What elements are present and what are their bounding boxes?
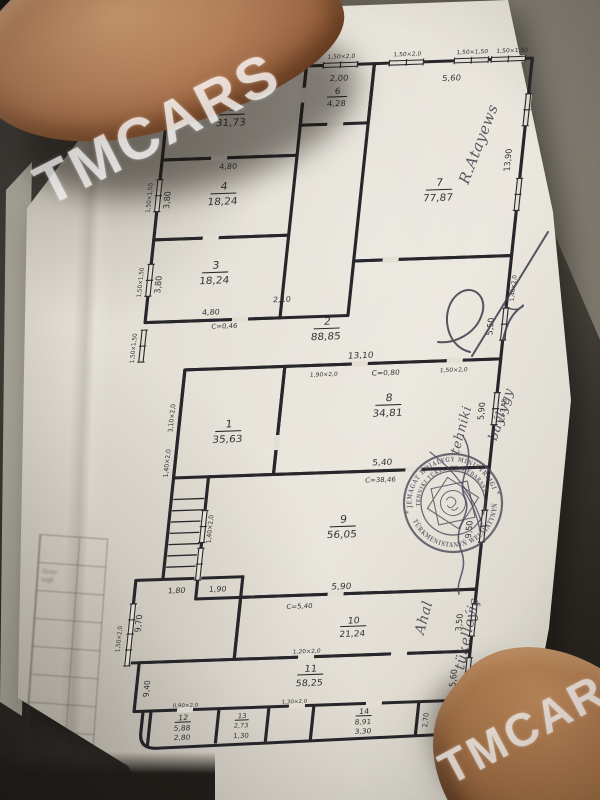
dim-annex-height: 9,70 <box>132 614 144 632</box>
table-shadow-bottom <box>0 752 215 800</box>
room-11-label: 1158,25 <box>295 664 325 690</box>
room-13-label: 132,73 <box>233 712 249 730</box>
dim-c046: C=0,46 <box>211 322 238 331</box>
window-label: 3,10×2,0 <box>167 404 177 433</box>
svg-text:9: 9 <box>339 513 348 526</box>
svg-text:10: 10 <box>347 615 360 626</box>
dim-room3-height: 3,80 <box>152 276 164 294</box>
window-label: 1,40×2,0 <box>163 449 173 478</box>
svg-text:35,63: 35,63 <box>212 434 243 446</box>
svg-text:58,25: 58,25 <box>295 678 323 690</box>
svg-text:5,88: 5,88 <box>173 723 191 732</box>
window-label: 1,50×1,50 <box>496 48 529 55</box>
room-14-label: 148,91 <box>354 707 373 727</box>
dim-c540: C=5,40 <box>286 602 313 611</box>
seal-star <box>422 472 484 534</box>
dim-room12-width: 2,80 <box>173 733 191 742</box>
svg-text:21,24: 21,24 <box>339 629 366 640</box>
door-label: 1,20×2,0 <box>292 649 321 656</box>
svg-text:13: 13 <box>237 712 247 720</box>
room-10-label: 1021,24 <box>339 615 368 640</box>
dim-room2-height: 5,50 <box>484 317 496 335</box>
door-label: 0,90×2,0 <box>172 703 199 710</box>
svg-text:3: 3 <box>212 259 220 272</box>
dim-c080: C=0,80 <box>371 368 400 378</box>
room-9-label: 956,05 <box>326 512 359 541</box>
svg-text:11: 11 <box>304 664 318 675</box>
dim-room8-height: 5,90 <box>475 402 487 420</box>
svg-text:88,85: 88,85 <box>310 331 341 343</box>
svg-text:2,73: 2,73 <box>233 722 248 729</box>
dim-room14-width: 3,30 <box>354 726 372 735</box>
room-8-label: 834,81 <box>372 391 405 420</box>
svg-text:34,81: 34,81 <box>372 408 403 420</box>
dim-room2-width: 13,10 <box>347 351 374 362</box>
svg-text:8,91: 8,91 <box>354 717 372 726</box>
svg-text:1: 1 <box>225 418 233 431</box>
seal-star-left: * <box>404 508 410 518</box>
dim-190: 1,90 <box>208 585 227 594</box>
dim-210: 2,10 <box>273 295 292 304</box>
svg-text:12: 12 <box>178 713 189 722</box>
dim-room9-width: 5,90 <box>331 582 352 592</box>
seal-inner-ring <box>415 465 491 541</box>
side-form-cell: Araw sagk <box>41 567 58 584</box>
window-label: 1,50×1,50 <box>137 267 146 297</box>
door-label: 1,50×2,0 <box>439 367 468 374</box>
svg-text:56,05: 56,05 <box>326 529 357 541</box>
svg-text:77,87: 77,87 <box>422 193 453 205</box>
svg-text:8: 8 <box>385 391 394 404</box>
dim-room3-width: 4,80 <box>202 308 221 317</box>
svg-text:14: 14 <box>359 707 370 716</box>
window-label: 1,50×2,0 <box>393 52 422 59</box>
window-label: 1,50×1,50 <box>130 333 139 363</box>
svg-text:18,24: 18,24 <box>199 275 230 287</box>
window-label: 1,50×2,0 <box>115 626 124 653</box>
door-label: 1,90×2,0 <box>309 372 338 379</box>
dim-room7-height: 13,90 <box>501 149 514 172</box>
room-1-label: 135,63 <box>212 417 245 446</box>
window-label: 1,40×2,0 <box>510 275 519 302</box>
dim-room11-left: 9,40 <box>141 680 152 697</box>
door-label: 1,30×2,0 <box>281 699 308 706</box>
photo-of-floor-plan: Araw sagk <box>0 0 600 800</box>
dim-room14-height: 2,70 <box>421 713 431 728</box>
dim-room7-width: 5,60 <box>442 73 462 83</box>
room-2-label: 288,85 <box>310 314 343 343</box>
room-3-label: 318,24 <box>199 258 232 287</box>
svg-text:7: 7 <box>435 176 443 189</box>
side-form-text-2: sagk <box>41 575 57 584</box>
window-label: 1,50×1,50 <box>456 49 489 56</box>
svg-text:JEMAGAT HOJALYGY MINISTRLIGI: JEMAGAT HOJALYGY MINISTRLIGI <box>397 447 499 510</box>
dim-180: 1,80 <box>167 586 186 595</box>
svg-text:18,24: 18,24 <box>207 196 238 208</box>
dim-room13-width: 1,30 <box>233 732 249 740</box>
room-7-label: 777,87 <box>422 176 455 205</box>
seal-emblem <box>446 496 459 512</box>
seal-text-top: JEMAGAT HOJALYGY MINISTRLIGI <box>397 447 499 510</box>
svg-text:2: 2 <box>323 315 331 328</box>
room-12-label: 125,88 <box>173 713 192 733</box>
